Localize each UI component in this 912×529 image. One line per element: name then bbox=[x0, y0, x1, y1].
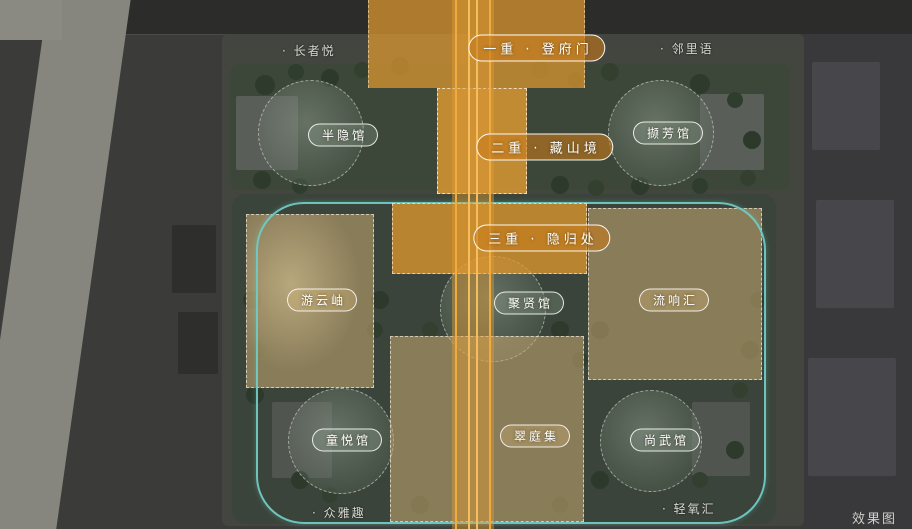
axis-line-outer-right bbox=[489, 0, 491, 529]
venue-label-tongyue: 童悦馆 bbox=[312, 429, 382, 452]
poi-label-group-delight: · 众雅趣 bbox=[312, 504, 366, 521]
building-shape bbox=[808, 358, 896, 476]
building-shape bbox=[812, 62, 880, 150]
building-shape bbox=[816, 200, 894, 308]
venue-label-youyunxiu: 游云岫 bbox=[287, 289, 357, 312]
building-shape bbox=[172, 225, 216, 293]
venue-label-liuxianghui: 流响汇 bbox=[639, 289, 709, 312]
site-plan-canvas: 一重 · 登府门 二重 · 藏山境 三重 · 隐归处 半隐馆 撷芳馆 游云岫 聚… bbox=[0, 0, 912, 529]
tree-cluster bbox=[0, 0, 16, 16]
building-shape bbox=[178, 312, 218, 374]
poi-label-elder-joy: · 长者悦 bbox=[282, 42, 336, 59]
venue-label-cuitingji: 翠庭集 bbox=[500, 425, 570, 448]
venue-label-xiefang: 撷芳馆 bbox=[633, 122, 703, 145]
axis-label-third-retreat: 三重 · 隐归处 bbox=[473, 225, 610, 252]
axis-label-second-realm: 二重 · 藏山境 bbox=[476, 134, 613, 161]
central-axis-band bbox=[452, 0, 494, 529]
road-left bbox=[0, 0, 133, 529]
poi-label-neighbor-talk: · 邻里语 bbox=[660, 40, 714, 57]
axis-line-inner-right bbox=[476, 0, 478, 529]
axis-line-outer-left bbox=[455, 0, 457, 529]
rendering-watermark: 效果图 bbox=[852, 508, 897, 527]
venue-label-banyin: 半隐馆 bbox=[308, 124, 378, 147]
poi-label-light-oxygen: · 轻氧汇 bbox=[662, 500, 716, 517]
axis-line-inner-left bbox=[468, 0, 470, 529]
venue-label-juxian: 聚贤馆 bbox=[494, 292, 564, 315]
axis-label-first-gate: 一重 · 登府门 bbox=[468, 35, 605, 62]
venue-label-shangwu: 尚武馆 bbox=[630, 429, 700, 452]
